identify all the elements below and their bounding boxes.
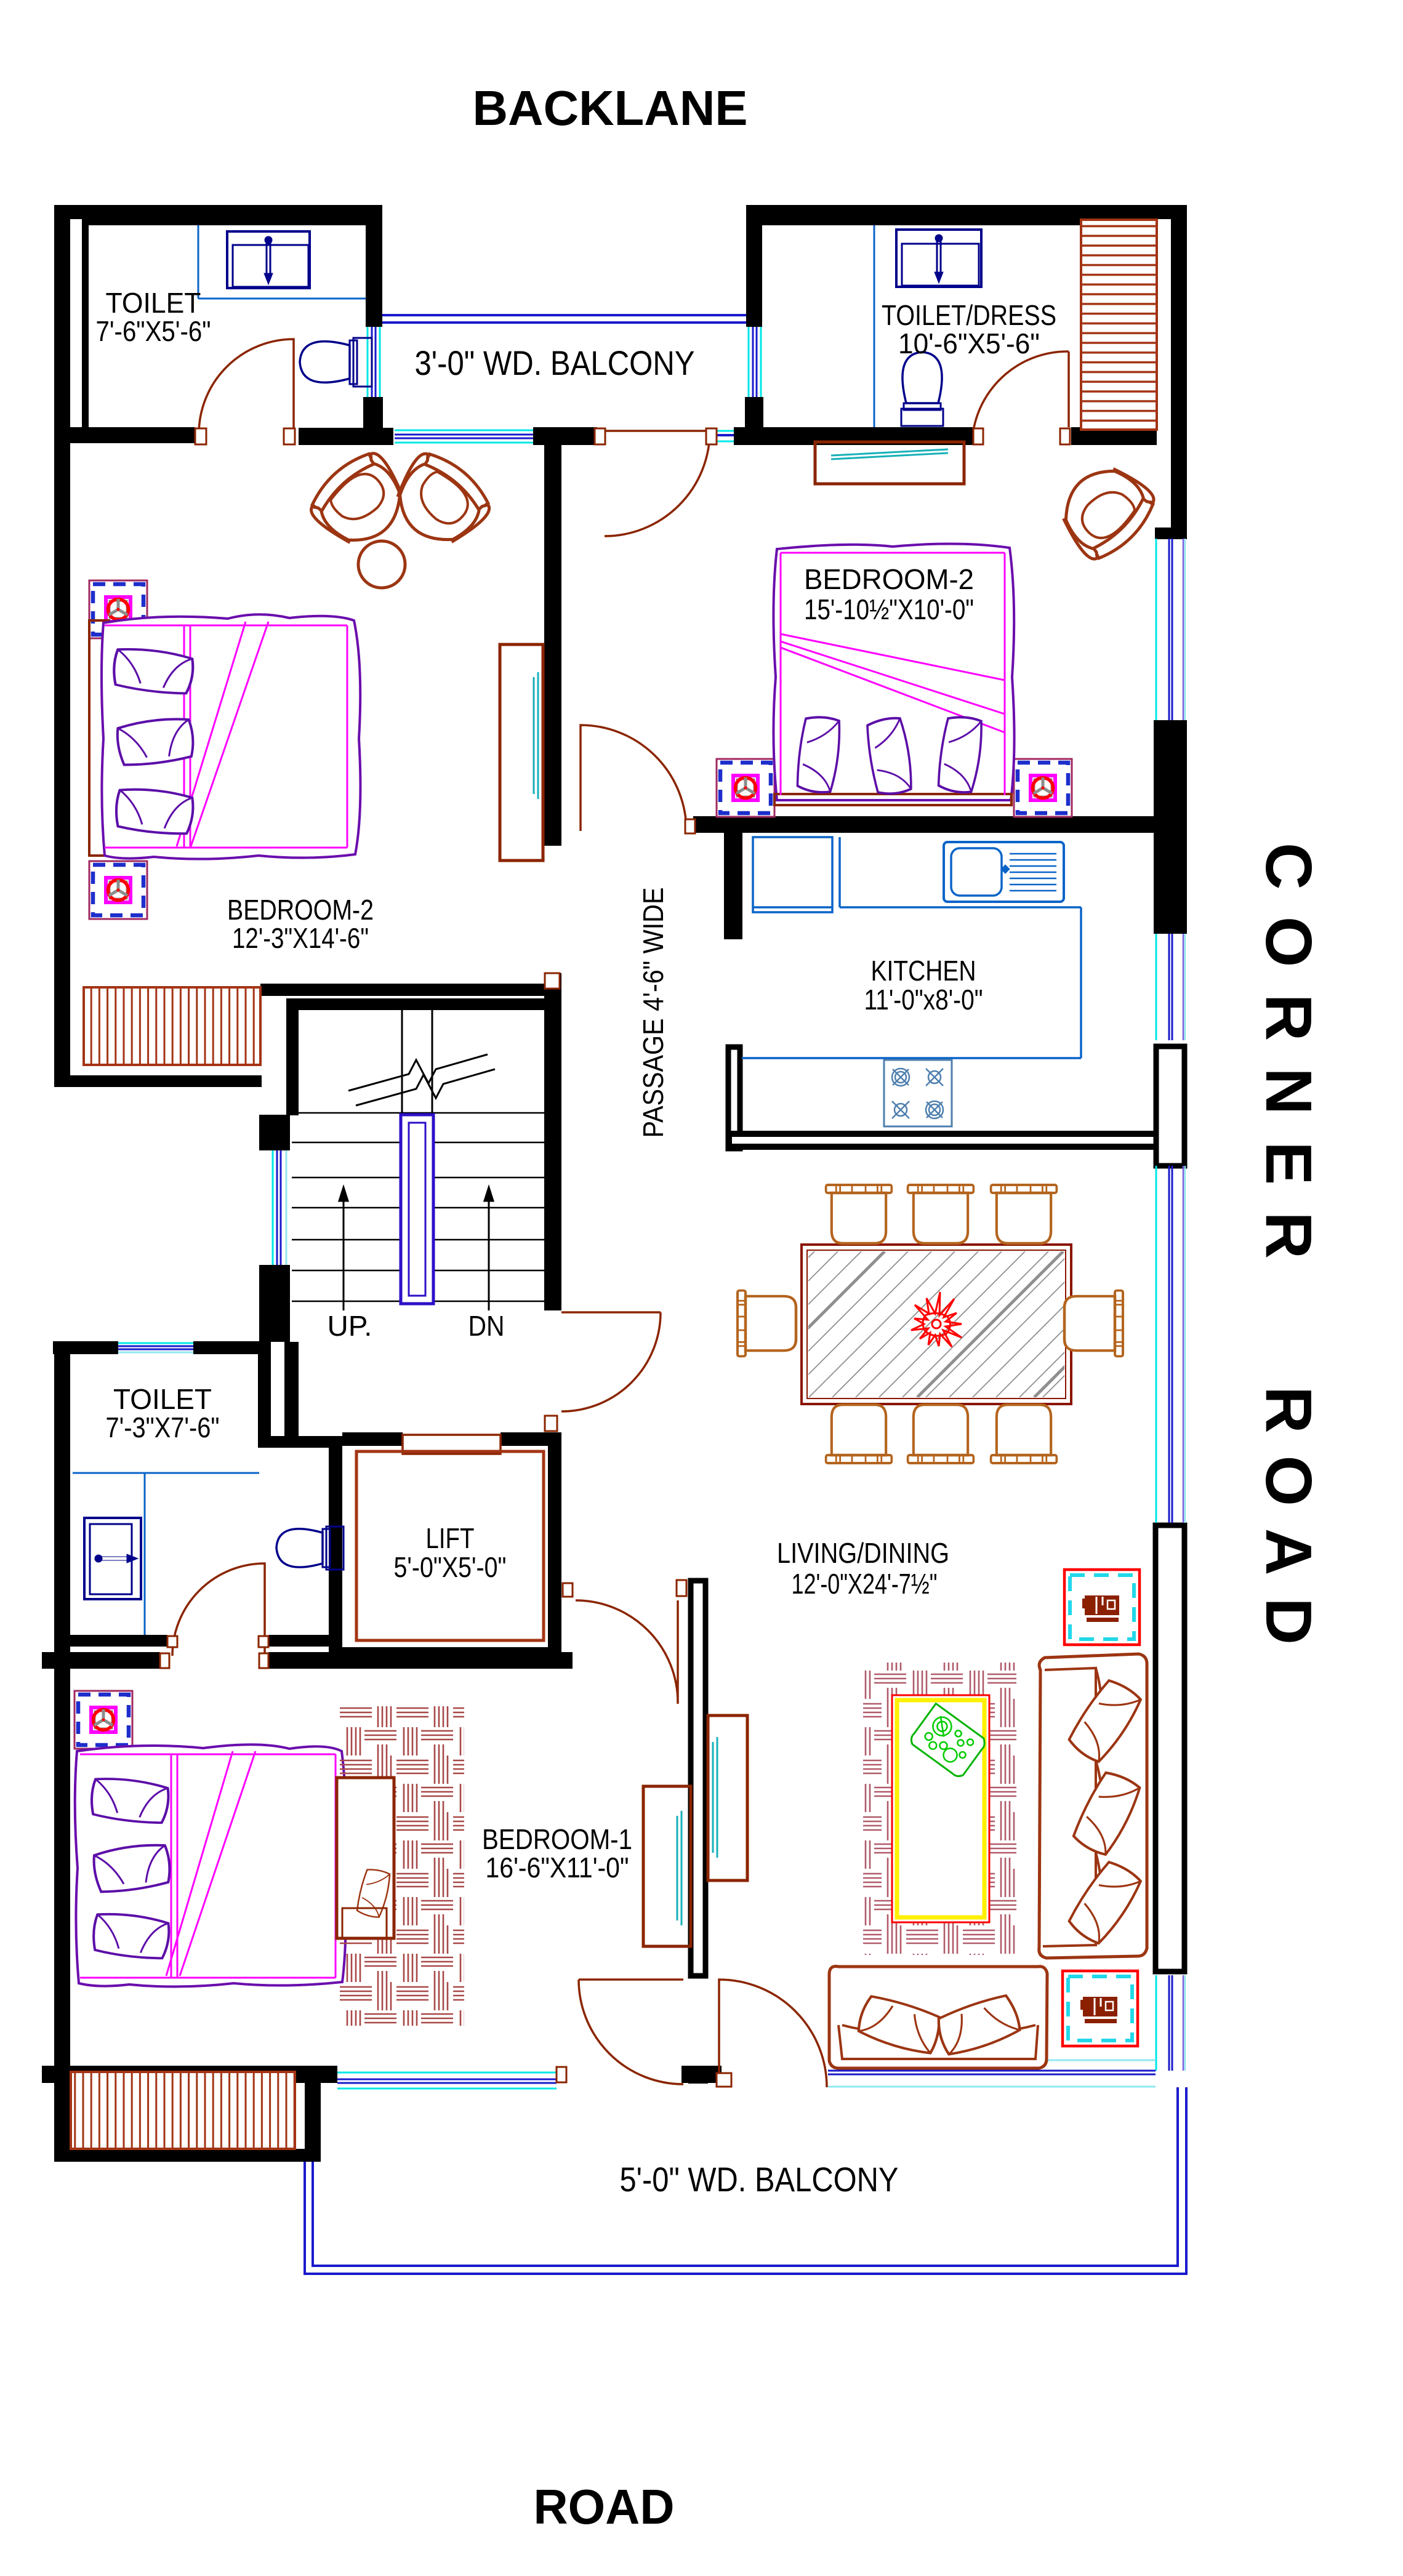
svg-text:DN: DN [468,1310,505,1342]
svg-text:11'-0"x8'-0": 11'-0"x8'-0" [864,984,983,1016]
svg-text:LIVING/DINING: LIVING/DINING [777,1537,949,1569]
svg-text:UP.: UP. [328,1310,372,1342]
svg-text:15'-10½"X10'-0": 15'-10½"X10'-0" [804,593,974,625]
svg-text:TOILET: TOILET [106,287,201,319]
svg-text:12'-3"X14'-6": 12'-3"X14'-6" [232,922,369,954]
svg-text:5'-0"X5'-0": 5'-0"X5'-0" [394,1551,507,1583]
svg-text:7'-6"X5'-6": 7'-6"X5'-6" [96,315,211,347]
svg-text:12'-0"X24'-7½": 12'-0"X24'-7½" [792,1568,938,1600]
svg-text:ROAD: ROAD [1252,1386,1325,1667]
svg-text:7'-3"X7'-6": 7'-3"X7'-6" [106,1411,220,1443]
svg-text:LIFT: LIFT [426,1522,475,1554]
svg-text:PASSAGE 4'-6" WIDE: PASSAGE 4'-6" WIDE [637,888,669,1138]
svg-text:10'-6"X5'-6": 10'-6"X5'-6" [898,327,1040,359]
svg-text:TOILET/DRESS: TOILET/DRESS [882,299,1056,331]
svg-text:ROAD: ROAD [534,2479,675,2534]
svg-text:TOILET: TOILET [113,1383,212,1415]
svg-text:BACKLANE: BACKLANE [473,81,748,135]
svg-text:BEDROOM-2: BEDROOM-2 [804,563,974,595]
svg-text:16'-6"X11'-0": 16'-6"X11'-0" [486,1852,629,1884]
svg-text:5'-0" WD. BALCONY: 5'-0" WD. BALCONY [620,2160,899,2199]
svg-text:BEDROOM-2: BEDROOM-2 [227,894,374,926]
svg-text:CORNER: CORNER [1252,843,1325,1281]
svg-text:3'-0" WD. BALCONY: 3'-0" WD. BALCONY [415,343,695,382]
svg-text:KITCHEN: KITCHEN [871,955,976,987]
svg-text:BEDROOM-1: BEDROOM-1 [482,1823,632,1855]
